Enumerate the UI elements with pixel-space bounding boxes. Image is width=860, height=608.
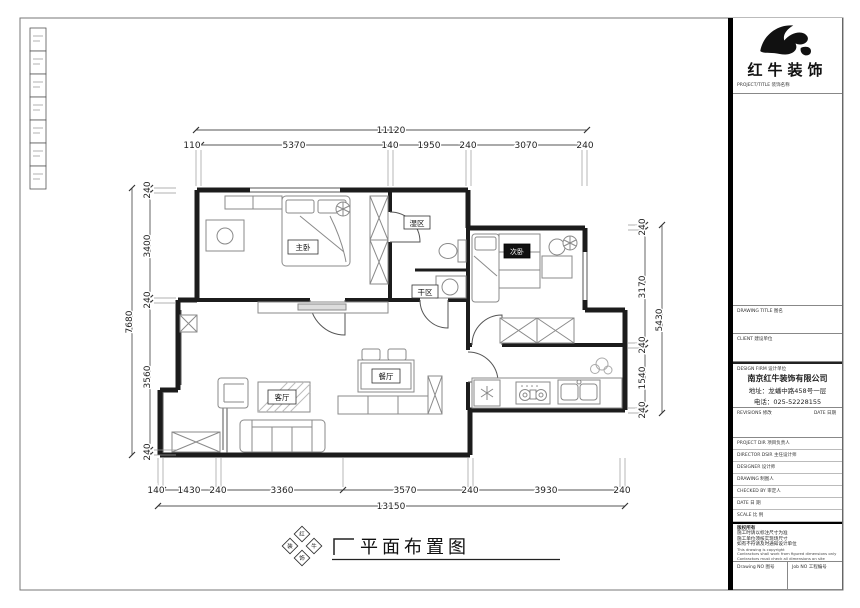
company-name: 南京红牛装饰有限公司 <box>733 373 842 384</box>
dim-left-3: 3560 <box>143 365 153 388</box>
toilet-icon <box>439 240 466 262</box>
room-label-living: 客厅 <box>275 392 290 402</box>
revisions-label: REVISIONS 修改 <box>737 410 772 416</box>
dim-left-2: 240 <box>143 291 153 308</box>
pillar-column <box>428 376 442 414</box>
fridge-icon <box>474 380 500 406</box>
dim-right-2: 240 <box>638 336 648 353</box>
furniture <box>172 196 622 452</box>
field-checked-by: CHECKED BY 审定人 <box>733 486 842 498</box>
dim-top-6: 240 <box>576 141 593 151</box>
dim-right-1: 3170 <box>638 275 648 298</box>
caption-bracket <box>334 539 354 555</box>
caption: 红 装 牛 饰 平面布置图 <box>282 526 560 566</box>
field-scale: SCALE 比 例 <box>733 510 842 522</box>
client-cell: CLIENT 建设单位 <box>733 334 842 362</box>
dim-bottom-7: 240 <box>613 486 630 496</box>
dim-top-4: 240 <box>459 141 476 151</box>
dim-bottom-5: 240 <box>461 486 478 496</box>
cabinet-run <box>499 234 540 288</box>
drawing-sheet: 主卧 湿区 干区 次卧 客厅 餐厅 110 5370 140 1950 240 … <box>0 0 860 608</box>
company-phone: 电话：025-52228155 <box>733 396 842 406</box>
design-firm-label: DESIGN FIRM 设计单位 <box>733 364 842 372</box>
sideboard-counter <box>338 396 428 414</box>
dim-top-total: 11120 <box>377 126 406 136</box>
dim-top-3: 1950 <box>418 141 441 151</box>
wardrobe-master <box>370 196 388 284</box>
dim-left-total: 7680 <box>125 310 135 333</box>
dim-left-0: 240 <box>143 181 153 198</box>
redbull-logo-icon <box>753 21 823 57</box>
armchair <box>218 378 248 408</box>
plant-icon <box>591 358 613 374</box>
dim-right-total: 5430 <box>655 308 665 331</box>
bath-dry-door <box>420 300 448 328</box>
field-director: DIRECTOR DSIR 主任设计师 <box>733 450 842 462</box>
second-bedroom-door <box>472 315 502 345</box>
sink-icon <box>558 380 600 404</box>
dim-bottom-2: 240 <box>209 486 226 496</box>
dim-left-1: 3400 <box>143 234 153 257</box>
dim-bottom-total: 13150 <box>377 502 406 512</box>
revision-strip <box>30 28 46 189</box>
room-label-bath-wet: 湿区 <box>410 219 425 228</box>
sofa <box>240 420 325 452</box>
date-col-label: DATE 日期 <box>814 410 836 416</box>
room-label-dining: 餐厅 <box>379 372 394 381</box>
brand-sub-label: PROJECT/TITLE 装饰名称 <box>733 82 842 88</box>
stamp-char-1: 装 <box>287 542 293 550</box>
ceiling-fan-icon-2 <box>563 236 577 250</box>
stamp-char-3: 饰 <box>299 554 305 562</box>
pillar-column-2 <box>180 315 197 332</box>
notes-cell: 版权所有 施工时请以标注尺寸为准 施工单位须核实现场尺寸 如有不符请及时通知设计… <box>733 522 842 562</box>
room-label-second-bedroom: 次卧 <box>510 247 524 256</box>
field-drawing: DRAWING 制图人 <box>733 474 842 486</box>
drawing-title-cell: DRAWING TITLE 图名 <box>733 306 842 334</box>
field-project-dir: PROJECT DIR 项目负责人 <box>733 438 842 450</box>
dim-bottom-3: 3360 <box>271 486 294 496</box>
job-no-label: Job NO 工程编号 <box>788 562 842 589</box>
drawing-no-label: Drawing NO 图号 <box>733 562 788 589</box>
revisions-cell: REVISIONS 修改 DATE 日期 <box>733 408 842 438</box>
drawing-title-label: DRAWING TITLE 图名 <box>733 306 842 314</box>
desk-and-chair <box>206 220 244 251</box>
dim-top-5: 3070 <box>515 141 538 151</box>
dim-bottom-6: 3930 <box>535 486 558 496</box>
dim-right-3: 1540 <box>638 366 648 389</box>
dim-bottom-4: 3570 <box>394 486 417 496</box>
dim-top-1: 5370 <box>283 141 306 151</box>
brand-name: 红牛装饰 <box>733 59 842 80</box>
stove-icon <box>516 382 550 404</box>
dim-right-0: 240 <box>638 218 648 235</box>
washer-cabinet <box>172 432 220 452</box>
ceiling-fan-icon <box>336 202 350 216</box>
title-block: 红牛装饰 PROJECT/TITLE 装饰名称 DRAWING TITLE 图名… <box>728 18 843 590</box>
stamp-char-2: 牛 <box>311 542 317 550</box>
field-designer: DESIGNER 设计师 <box>733 462 842 474</box>
wardrobe-second <box>500 318 574 343</box>
drawing-title-area <box>733 94 842 306</box>
client-label: CLIENT 建设单位 <box>733 334 842 342</box>
room-label-bath-dry: 干区 <box>418 288 433 297</box>
stamp-char-0: 红 <box>299 530 305 538</box>
design-firm-cell: DESIGN FIRM 设计单位 南京红牛装饰有限公司 地址：龙蟠中路458号一… <box>733 362 842 408</box>
dim-right-4: 240 <box>638 401 648 418</box>
room-label-master: 主卧 <box>296 242 311 252</box>
single-bed <box>472 234 499 302</box>
dim-top-2: 140 <box>381 141 398 151</box>
number-cells: Drawing NO 图号 Job NO 工程编号 <box>733 562 842 590</box>
dim-top-0: 110 <box>183 141 200 151</box>
dim-bottom-0: 140 <box>147 486 164 496</box>
logo-cell: 红牛装饰 PROJECT/TITLE 装饰名称 <box>733 18 842 94</box>
company-address: 地址：龙蟠中路458号一层 <box>733 385 842 395</box>
caption-title: 平面布置图 <box>360 537 470 558</box>
tv-cabinet <box>258 302 388 313</box>
dim-left-4: 240 <box>143 443 153 460</box>
washbasin-icon <box>436 276 466 298</box>
dim-bottom-1: 1430 <box>178 486 201 496</box>
field-date: DATE 日 期 <box>733 498 842 510</box>
